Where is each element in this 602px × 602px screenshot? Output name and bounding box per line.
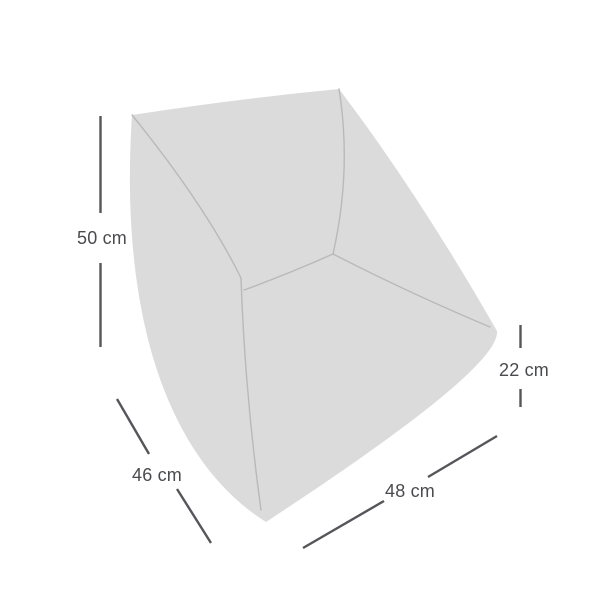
width-dimension-line-upper <box>428 436 497 477</box>
height-dimension-label: 50 cm <box>77 228 127 248</box>
dimension-diagram-svg: 50 cm 46 cm 48 cm 22 cm <box>0 0 602 602</box>
dimension-diagram-canvas: 50 cm 46 cm 48 cm 22 cm <box>0 0 602 602</box>
dimension-seat-height: 22 cm <box>499 325 549 407</box>
depth-dimension-line-lower <box>177 489 211 543</box>
depth-dimension-label: 46 cm <box>132 465 182 485</box>
chair-illustration <box>130 89 497 522</box>
width-dimension-label: 48 cm <box>385 481 435 501</box>
depth-dimension-line-upper <box>117 399 149 454</box>
dimension-height: 50 cm <box>77 116 127 347</box>
seat-height-dimension-label: 22 cm <box>499 360 549 380</box>
width-dimension-line-lower <box>303 501 384 548</box>
